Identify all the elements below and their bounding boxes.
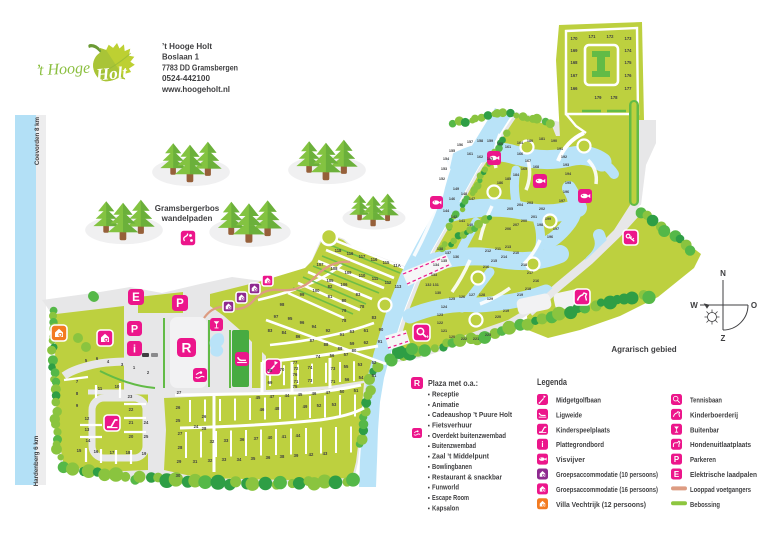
svg-text:152: 152 [439,177,445,181]
svg-text:95: 95 [288,316,293,321]
svg-text:78: 78 [360,304,365,309]
svg-text:72: 72 [294,366,299,371]
svg-text:110: 110 [359,273,366,278]
svg-text:73: 73 [308,378,313,383]
svg-text:34: 34 [237,457,242,462]
svg-text:68: 68 [268,368,273,373]
svg-text:133: 133 [431,273,437,277]
svg-text:134: 134 [433,263,440,267]
svg-text:118: 118 [335,248,342,253]
svg-text:215: 215 [491,259,497,263]
svg-text:31: 31 [193,459,198,464]
svg-text:113: 113 [395,284,402,289]
svg-text:25: 25 [176,418,181,423]
svg-text:36: 36 [266,455,271,460]
svg-text:82: 82 [328,284,333,289]
svg-text:171: 171 [589,34,597,39]
svg-text:wandelpaden: wandelpaden [161,214,213,223]
svg-text:121: 121 [441,329,447,333]
svg-text:13: 13 [85,427,90,432]
svg-text:163: 163 [487,157,493,161]
svg-text:87: 87 [310,338,315,343]
svg-text:213: 213 [505,245,511,249]
svg-text:219: 219 [503,309,509,313]
svg-text:46: 46 [312,391,317,396]
svg-text:144: 144 [443,209,450,213]
svg-text:202: 202 [539,207,545,211]
svg-text:153: 153 [441,167,447,171]
svg-text:86: 86 [296,334,301,339]
svg-text:169: 169 [571,48,579,53]
svg-text:Plaza met o.a.:: Plaza met o.a.: [428,379,478,388]
svg-text:206: 206 [505,227,511,231]
svg-text:79: 79 [342,308,347,313]
svg-text:59: 59 [350,341,355,346]
svg-text:47: 47 [326,390,331,395]
svg-text:173: 173 [625,36,633,41]
svg-text:’t Hooge: ’t Hooge [35,60,90,80]
svg-text:164: 164 [517,141,524,145]
svg-text:162: 162 [477,155,483,159]
svg-text:22: 22 [129,407,134,412]
svg-text:91: 91 [340,332,345,337]
svg-text:192: 192 [561,155,567,159]
svg-text:www.hoogeholt.nl: www.hoogeholt.nl [161,84,230,94]
svg-text:E: E [674,470,679,479]
svg-text:180: 180 [527,139,533,143]
svg-text:25: 25 [144,434,149,439]
svg-text:Restaurant & snackbar: Restaurant & snackbar [432,474,502,481]
svg-text:78: 78 [342,318,347,323]
svg-text:30: 30 [176,473,181,478]
svg-text:176: 176 [625,73,633,78]
svg-text:Receptie: Receptie [432,392,459,399]
svg-text:156: 156 [457,143,463,147]
svg-text:R: R [182,340,192,355]
svg-text:43: 43 [323,451,328,456]
svg-text:Funworld: Funworld [432,485,459,492]
svg-text:175: 175 [625,60,633,65]
svg-text:61: 61 [364,328,369,333]
svg-text:Elektrische laadpalen: Elektrische laadpalen [690,470,757,479]
svg-text:55: 55 [344,364,349,369]
svg-text:12: 12 [85,416,90,421]
svg-text:P: P [176,298,184,310]
svg-text:100: 100 [313,288,321,293]
svg-text:126: 126 [459,295,465,299]
svg-text:Groepsaccommodatie (16 persoon: Groepsaccommodatie (16 persoons) [556,485,658,494]
svg-text:Overdekt buitenzwembad: Overdekt buitenzwembad [432,433,506,440]
svg-text:185: 185 [505,177,511,181]
svg-text:41: 41 [282,434,287,439]
svg-text:220: 220 [495,315,501,319]
svg-text:83: 83 [356,292,361,297]
svg-text:88: 88 [324,342,329,347]
svg-text:167: 167 [571,73,579,78]
svg-text:26: 26 [176,405,181,410]
svg-text:97: 97 [274,314,279,319]
svg-text:29: 29 [177,459,182,464]
svg-text:39: 39 [294,453,299,458]
svg-text:166: 166 [517,152,523,156]
svg-text:168: 168 [571,60,579,65]
svg-text:Legenda: Legenda [537,377,568,387]
svg-text:195: 195 [565,181,571,185]
svg-text:Visvijver: Visvijver [556,455,585,464]
svg-text:149: 149 [453,187,459,191]
svg-text:Bowlingbanen: Bowlingbanen [432,464,472,471]
svg-text:51: 51 [372,373,377,378]
svg-text:Agrarisch gebied: Agrarisch gebied [611,345,676,354]
svg-text:70: 70 [280,367,285,372]
svg-text:96: 96 [300,320,305,325]
svg-text:Zaal ’t Middelpunt: Zaal ’t Middelpunt [432,454,490,461]
svg-text:200: 200 [521,219,527,223]
svg-text:142: 142 [451,215,457,219]
svg-text:132 131: 132 131 [425,283,439,287]
svg-text:120: 120 [449,335,455,339]
svg-text:90: 90 [379,327,384,332]
svg-text:O: O [751,301,757,310]
svg-text:217: 217 [527,271,533,275]
svg-text:80: 80 [352,348,357,353]
svg-text:84: 84 [282,330,287,335]
svg-text:27: 27 [178,431,183,436]
svg-text:154: 154 [443,157,450,161]
svg-text:160: 160 [497,142,503,146]
svg-text:129: 129 [487,297,493,301]
svg-text:89: 89 [338,346,343,351]
svg-text:Cadeaushop ’t Puure Holt: Cadeaushop ’t Puure Holt [432,412,513,419]
svg-text:80: 80 [342,298,347,303]
svg-text:193: 193 [563,163,569,167]
svg-text:38: 38 [280,454,285,459]
svg-text:46: 46 [260,407,265,412]
svg-text:141: 141 [459,219,465,223]
svg-text:165: 165 [521,167,527,171]
svg-text:199: 199 [545,217,551,221]
svg-text:107: 107 [317,262,325,267]
svg-text:16: 16 [94,449,99,454]
svg-text:125: 125 [449,297,455,301]
svg-text:81: 81 [328,294,333,299]
svg-text:i: i [133,343,136,355]
svg-text:51: 51 [354,388,359,393]
svg-text:35: 35 [251,456,256,461]
svg-text:E: E [132,292,140,304]
svg-text:179: 179 [595,95,603,100]
svg-text:Tennisbaan: Tennisbaan [690,396,722,405]
svg-text:196: 196 [547,235,553,239]
svg-text:181: 181 [539,137,545,141]
svg-text:106: 106 [341,282,349,287]
svg-text:98: 98 [280,302,285,307]
svg-text:23: 23 [128,394,133,399]
svg-text:210: 210 [513,251,519,255]
svg-text:136: 136 [453,255,459,259]
svg-text:105: 105 [327,278,335,283]
svg-text:221: 221 [473,337,479,341]
svg-text:Hondenuitlaatplaats: Hondenuitlaatplaats [690,440,751,449]
svg-text:W: W [690,301,698,310]
svg-text:17: 17 [110,450,115,455]
svg-text:7783 DD Gramsbergen: 7783 DD Gramsbergen [162,62,238,72]
svg-text:Villa Vechtrijk (12 persoons): Villa Vechtrijk (12 persoons) [556,500,647,509]
svg-text:Boslaan 1: Boslaan 1 [162,52,199,62]
svg-text:216: 216 [533,279,539,283]
svg-text:167: 167 [525,159,531,163]
svg-text:56: 56 [330,353,335,358]
svg-text:158: 158 [477,139,483,143]
svg-text:0524-442100: 0524-442100 [162,73,210,83]
svg-text:168: 168 [533,165,539,169]
svg-text:27: 27 [177,390,182,395]
svg-text:63: 63 [350,329,355,334]
svg-text:18: 18 [126,450,131,455]
svg-text:190: 190 [551,139,557,143]
svg-text:178: 178 [611,95,619,100]
svg-text:57: 57 [344,352,349,357]
svg-text:56: 56 [345,377,350,382]
svg-text:28: 28 [178,445,183,450]
svg-text:45: 45 [256,395,261,400]
svg-text:148: 148 [461,192,467,196]
svg-text:77: 77 [293,360,298,365]
svg-text:N: N [720,269,726,278]
svg-text:11: 11 [98,386,103,391]
svg-text:71: 71 [331,379,336,384]
svg-text:Buitenbar: Buitenbar [690,425,719,434]
svg-text:P: P [131,323,138,335]
svg-text:+: + [426,334,429,340]
svg-text:53: 53 [332,402,337,407]
svg-text:Gramsbergerbos: Gramsbergerbos [155,204,220,213]
svg-text:161: 161 [505,145,511,149]
svg-text:Coevorden 8 km: Coevorden 8 km [34,116,41,165]
svg-text:109: 109 [345,270,353,275]
svg-text:223: 223 [485,333,491,337]
svg-text:Plattegrondbord: Plattegrondbord [556,440,604,449]
svg-text:186: 186 [497,181,503,185]
svg-text:146: 146 [449,197,455,201]
svg-text:115: 115 [383,260,390,265]
svg-text:83: 83 [268,328,273,333]
svg-text:10: 10 [115,384,120,389]
svg-text:P: P [674,455,679,464]
svg-text:Midgetgolfbaan: Midgetgolfbaan [556,396,601,405]
svg-text:32: 32 [210,439,215,444]
svg-text:127: 127 [469,293,475,297]
svg-text:130: 130 [435,291,441,295]
svg-text:124: 124 [441,305,448,309]
svg-text:170: 170 [571,36,579,41]
svg-text:161: 161 [467,152,473,156]
svg-text:44: 44 [296,433,301,438]
svg-text:159: 159 [487,139,493,143]
svg-text:28: 28 [202,426,207,431]
svg-text:212: 212 [485,249,491,253]
svg-text:138: 138 [437,247,443,251]
svg-text:91: 91 [378,339,383,344]
svg-text:R: R [414,378,421,388]
svg-text:54: 54 [359,375,364,380]
svg-text:Looppad voetgangers: Looppad voetgangers [690,485,751,494]
svg-text:48: 48 [275,406,280,411]
svg-text:122: 122 [437,321,443,325]
svg-text:Kinderspeelplaats: Kinderspeelplaats [556,425,610,434]
svg-text:’t Hooge Holt: ’t Hooge Holt [162,41,212,51]
svg-text:116: 116 [371,257,378,262]
svg-text:14: 14 [86,438,91,443]
svg-text:45: 45 [298,392,303,397]
svg-text:52: 52 [372,360,377,365]
svg-text:218: 218 [525,287,531,291]
svg-text:37: 37 [254,436,259,441]
svg-text:205: 205 [507,207,513,211]
svg-text:166: 166 [571,86,579,91]
svg-text:111: 111 [372,276,379,281]
svg-text:Buitenzwembad: Buitenzwembad [432,443,476,450]
svg-text:196: 196 [563,190,569,194]
svg-text:Parkeren: Parkeren [690,455,716,464]
svg-text:26: 26 [202,414,207,419]
svg-text:40: 40 [268,435,273,440]
svg-text:24: 24 [144,420,149,425]
svg-text:157: 157 [467,140,473,144]
svg-text:Escape Room: Escape Room [432,495,469,502]
svg-text:53: 53 [358,362,363,367]
svg-text:Holt: Holt [94,63,129,85]
svg-text:198: 198 [537,223,543,227]
svg-text:197: 197 [553,227,559,231]
svg-text:204: 204 [517,203,524,207]
svg-text:Hardenberg 6 km: Hardenberg 6 km [33,435,40,486]
svg-text:15: 15 [77,448,82,453]
svg-text:42: 42 [309,452,314,457]
svg-text:177: 177 [625,86,633,91]
svg-text:76: 76 [293,372,298,377]
svg-text:Z: Z [721,334,726,343]
svg-text:222: 222 [461,337,467,341]
svg-text:47: 47 [270,394,275,399]
svg-text:32: 32 [208,458,213,463]
svg-text:44: 44 [285,393,290,398]
svg-text:Bebossing: Bebossing [690,500,720,509]
svg-text:194: 194 [565,172,572,176]
svg-text:117: 117 [359,254,366,259]
svg-text:207: 207 [513,223,519,227]
svg-text:99: 99 [300,292,305,297]
svg-text:116: 116 [347,251,354,256]
svg-text:20: 20 [129,434,134,439]
svg-text:211: 211 [495,247,501,251]
svg-text:191: 191 [557,147,563,151]
svg-text:184: 184 [513,173,520,177]
svg-text:Ligweide: Ligweide [556,410,582,419]
svg-text:214: 214 [501,255,508,259]
svg-text:19: 19 [142,451,147,456]
svg-text:Animatie: Animatie [432,402,459,409]
svg-text:Kapsalon: Kapsalon [432,505,459,512]
svg-text:92: 92 [326,328,331,333]
svg-text:24: 24 [194,424,199,429]
svg-text:36: 36 [240,437,245,442]
svg-text:11A: 11A [393,263,400,268]
svg-text:172: 172 [607,34,615,39]
svg-text:Groepsaccommodatie (10 persoon: Groepsaccommodatie (10 persoons) [556,470,658,479]
svg-text:203: 203 [527,201,533,205]
svg-text:216: 216 [483,265,489,269]
svg-text:135: 135 [441,259,447,263]
svg-text:74: 74 [316,354,321,359]
svg-text:71: 71 [294,379,299,384]
svg-text:218: 218 [521,263,527,267]
svg-text:197: 197 [559,199,565,203]
svg-text:33: 33 [222,457,227,462]
svg-text:Fietsverhuur: Fietsverhuur [432,423,472,430]
svg-text:83: 83 [372,315,377,320]
svg-text:94: 94 [312,324,317,329]
svg-text:49: 49 [303,404,308,409]
svg-text:73: 73 [331,366,336,371]
svg-text:i: i [541,440,543,449]
svg-text:140: 140 [467,223,473,227]
svg-text:201: 201 [531,215,537,219]
svg-text:62: 62 [364,340,369,345]
svg-text:75: 75 [293,384,298,389]
svg-text:219: 219 [517,293,523,297]
svg-text:21: 21 [129,420,134,425]
svg-text:69: 69 [268,380,273,385]
svg-text:33: 33 [224,438,229,443]
svg-text:155: 155 [449,149,455,153]
svg-text:108: 108 [331,266,339,271]
svg-text:147: 147 [469,197,475,201]
svg-text:Kinderboerderij: Kinderboerderij [690,410,738,419]
svg-text:137: 137 [445,251,451,255]
svg-text:174: 174 [625,48,633,53]
svg-text:128: 128 [479,293,485,297]
svg-text:123: 123 [437,313,443,317]
svg-text:112: 112 [385,280,392,285]
svg-text:52: 52 [317,403,322,408]
svg-text:74: 74 [308,365,313,370]
svg-text:50: 50 [340,389,345,394]
